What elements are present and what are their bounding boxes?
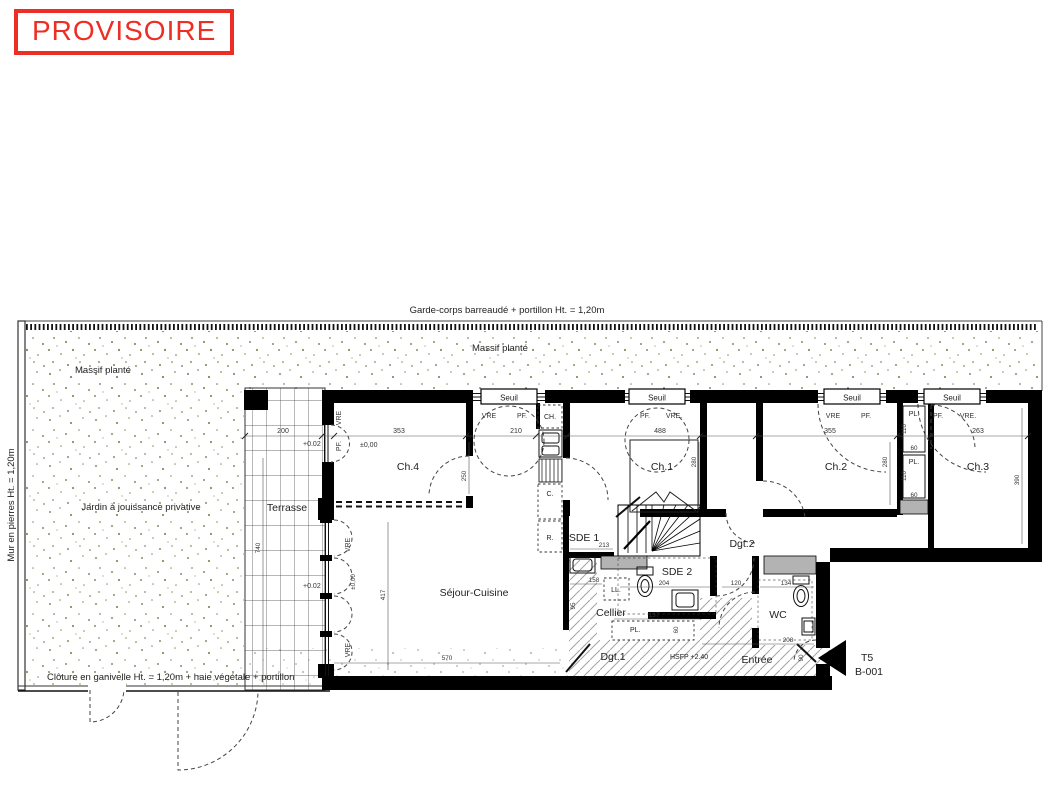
wc-toilet xyxy=(794,586,809,607)
southeast-wall xyxy=(830,548,1042,562)
north-wall-2 xyxy=(545,390,625,403)
dim-488: 488 xyxy=(654,428,666,435)
closet-pl-3 xyxy=(612,621,694,640)
north-wall-4 xyxy=(886,390,918,403)
guardrail-label: Garde-corps barreaudé + portillon Ht. = … xyxy=(410,305,605,316)
terrace-depth-dim: 740 xyxy=(255,542,262,553)
dim-pl2-width: 60 xyxy=(910,492,918,499)
wc-west-wall-a xyxy=(752,556,759,594)
dim-pl3-depth: 60 xyxy=(673,626,680,634)
dim-pl1-depth: 110 xyxy=(901,423,908,434)
floor-plan-drawing: Garde-corps barreaudé + portillon Ht. = … xyxy=(0,0,1059,800)
ch1-west-wall-b xyxy=(563,500,570,516)
stone-wall-label: Mur en pierres Ht. = 1,20m xyxy=(6,448,17,561)
cooker-label: C. xyxy=(547,491,554,498)
doors xyxy=(334,405,975,672)
entree-label: Entrée xyxy=(742,654,773,666)
dim-355: 355 xyxy=(824,428,836,435)
dim-cellier-2: 137 xyxy=(649,612,660,619)
ch3-label: Ch.3 xyxy=(967,461,989,473)
dim-sde2: 204 xyxy=(659,580,670,587)
seuil-label-1: Seuil xyxy=(500,394,518,403)
w3-pf: PF. xyxy=(861,413,871,420)
ground-level-sejour: ±0,00 xyxy=(350,574,357,590)
west-corner-1 xyxy=(318,498,334,520)
dim-cellier-depth: 95 xyxy=(570,602,577,610)
ch4-east-wall-a xyxy=(466,403,473,456)
dim-200: 200 xyxy=(277,428,289,435)
hsfp-label: HSFP +2.40 xyxy=(670,654,708,661)
seuil-label-2: Seuil xyxy=(648,394,666,403)
sde2-door-swing xyxy=(716,558,754,596)
sde2-toilet-bowl xyxy=(641,580,649,593)
stone-wall xyxy=(18,321,25,690)
seuil-label-4: Seuil xyxy=(943,394,961,403)
bed-ch1 xyxy=(630,440,698,512)
w4-pf: PF. xyxy=(933,413,943,420)
ch4-label: Ch.4 xyxy=(397,461,419,473)
dim-210: 210 xyxy=(510,428,522,435)
dim-ch1-depth: 280 xyxy=(691,456,698,467)
massif-top-label: Massif planté xyxy=(472,343,528,354)
west-wall-1 xyxy=(322,403,334,425)
wc-toilet-bowl xyxy=(797,590,805,603)
garden: Garde-corps barreaudé + portillon Ht. = … xyxy=(6,305,1042,770)
floor-plan-page: Garde-corps barreaudé + portillon Ht. = … xyxy=(0,0,1059,800)
ch1-east-wall xyxy=(700,403,707,516)
w1-vre: VRE xyxy=(482,413,497,420)
unit-type: T5 xyxy=(861,652,873,664)
w4-vre: VRE. xyxy=(960,413,976,420)
stair-north-wall xyxy=(640,509,726,517)
pl3-label: PL. xyxy=(630,627,641,634)
dim-sde1: 213 xyxy=(599,542,610,549)
bay-vre-2: VRE xyxy=(345,642,352,657)
garden-gate-swing xyxy=(90,690,124,722)
provisoire-stamp: PROVISOIRE xyxy=(14,9,234,55)
dim-263: 263 xyxy=(972,428,984,435)
terrace-level: +0.02 xyxy=(303,441,321,448)
sde2-label: SDE 2 xyxy=(662,566,693,578)
dim-entry-door: 90 xyxy=(798,654,805,662)
sink-bowl-2 xyxy=(542,446,559,455)
east-wall xyxy=(1028,390,1042,562)
sde2-basin-bowl xyxy=(676,593,694,607)
dim-entree: 208 xyxy=(783,637,794,644)
sink-bowl-1 xyxy=(542,433,559,443)
dim-ch4-depth: 250 xyxy=(461,470,468,481)
jardin-label: Jardin à jouissance privative xyxy=(81,502,200,513)
gate-opening xyxy=(88,683,126,693)
dim-wc: 134 xyxy=(781,580,792,587)
w2-pf: PF. xyxy=(640,413,650,420)
dim-pl1-width: 60 xyxy=(910,445,918,452)
dim-353: 353 xyxy=(393,428,405,435)
terrace-level-2: +0.02 xyxy=(303,583,321,590)
ch1-door-swing xyxy=(566,458,608,500)
ch3-west-wall xyxy=(928,403,934,548)
w2-vre: VRE. xyxy=(666,413,682,420)
dgt1-label: Dgt.1 xyxy=(600,651,625,663)
ch2-label: Ch.2 xyxy=(825,461,847,473)
ch4-window-pf: PF. xyxy=(336,441,343,451)
terrace-label: Terrasse xyxy=(267,502,307,514)
washing-machine-label: LL. xyxy=(611,587,621,594)
water-heater-label: CH. xyxy=(544,414,556,421)
sde2-toilet xyxy=(638,576,653,597)
ch4-window-vre: VRE xyxy=(336,410,343,425)
dim-sejour-width: 570 xyxy=(442,655,453,662)
pl2-label: PL. xyxy=(909,459,920,466)
sde1-label: SDE 1 xyxy=(569,532,600,544)
wc-east-wall xyxy=(816,562,830,648)
bay-vre-1: VRE xyxy=(345,537,352,552)
wc-label: WC xyxy=(769,609,787,621)
dim-sejour-depth: 417 xyxy=(380,589,387,600)
pl1-label: PL. xyxy=(909,411,920,418)
provisoire-stamp-text: PROVISOIRE xyxy=(32,15,216,46)
fridge-label: R. xyxy=(547,535,554,542)
bay-door-3 xyxy=(334,596,352,632)
dim-cellier-1: 158 xyxy=(589,577,600,584)
dim-ch3-depth: 390 xyxy=(1014,474,1021,485)
dim-ch2-depth: 280 xyxy=(882,456,889,467)
terrace-wall-stub xyxy=(244,390,268,410)
ch1-label: Ch.1 xyxy=(651,461,673,473)
north-wall-1 xyxy=(322,390,473,403)
south-wall xyxy=(322,676,832,690)
dishwasher xyxy=(539,459,562,482)
ch3-door-swing xyxy=(931,405,975,449)
ground-level: ±0,00 xyxy=(360,442,378,449)
entry-east-wall xyxy=(816,664,830,678)
closet-west-wall xyxy=(897,403,903,515)
mullion-3 xyxy=(320,593,332,599)
mullion-1 xyxy=(320,517,332,523)
sejour-label: Séjour-Cuisine xyxy=(440,587,509,599)
closet-base xyxy=(900,500,928,514)
north-wall-3 xyxy=(690,390,818,403)
dgt2-label: Dgt.2 xyxy=(729,538,754,550)
dim-pl2-depth: 110 xyxy=(901,470,908,481)
massif-left-label: Massif planté xyxy=(75,365,131,376)
cellier-label: Cellier xyxy=(596,607,626,619)
mullion-2 xyxy=(320,555,332,561)
cooker xyxy=(538,484,562,519)
west-wall-2 xyxy=(322,462,334,498)
ch2-south-wall xyxy=(763,509,897,517)
seuil-label-3: Seuil xyxy=(843,394,861,403)
ch2-west-wall xyxy=(756,403,763,481)
mullion-4 xyxy=(320,631,332,637)
duct-above-wc xyxy=(764,556,816,574)
ch4-east-wall-b xyxy=(466,496,473,508)
ch1-west-wall-a xyxy=(563,403,570,458)
dim-dgt2: 120 xyxy=(731,580,742,587)
unit-code: B-001 xyxy=(855,666,883,678)
w3-vre: VRE xyxy=(826,413,841,420)
terrace-gate-swing xyxy=(178,692,258,770)
w1-pf: PF. xyxy=(517,413,527,420)
